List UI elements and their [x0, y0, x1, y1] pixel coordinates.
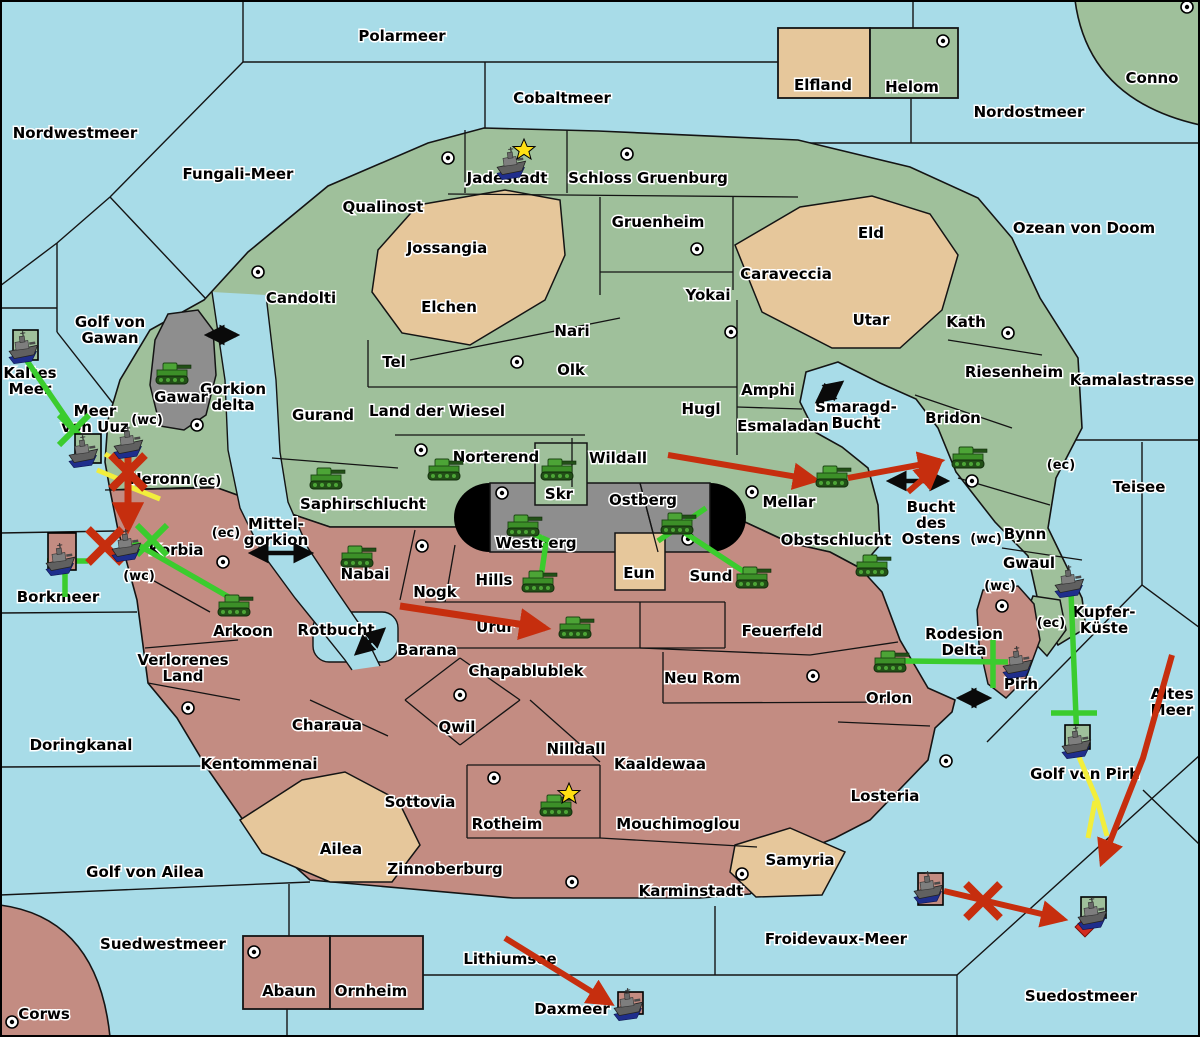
- territory-label-conno: Conno: [1126, 69, 1179, 87]
- territory-label-elchen: Elchen: [421, 298, 477, 316]
- sea-label-kamalastrasse: Kamalastrasse: [1070, 371, 1194, 389]
- sea-label-teisee: Teisee: [1113, 478, 1166, 496]
- territory-label-obstschlucht: Obstschlucht: [781, 531, 892, 549]
- territory-label-norterend: Norterend: [453, 448, 540, 466]
- territory-label-elfland: Elfland: [794, 76, 852, 94]
- territory-label-samyria: Samyria: [766, 851, 835, 869]
- sea-label-mittel-gorkion: Mittel-gorkion: [244, 515, 309, 549]
- territory-label-gwaul: Gwaul: [1003, 554, 1055, 572]
- city-marker: [621, 148, 633, 160]
- city-marker: [511, 356, 523, 368]
- territory-label-gawar: Gawar: [154, 388, 208, 406]
- territory-label-helom: Helom: [885, 78, 939, 96]
- territory-label-nabai: Nabai: [341, 565, 390, 583]
- territory-label-qwil: Qwil: [439, 718, 476, 736]
- territory-label-eld: Eld: [858, 224, 884, 242]
- sea-label-cobaltmeer: Cobaltmeer: [513, 89, 611, 107]
- sea-border-line: [0, 766, 205, 767]
- city-marker: [746, 486, 758, 498]
- ship-unit-borkmeer[interactable]: [43, 533, 77, 576]
- sea-label-nordostmeer: Nordostmeer: [974, 103, 1085, 121]
- territory-label-sund: Sund: [690, 567, 733, 585]
- sea-label-doringkanal: Doringkanal: [30, 736, 133, 754]
- territory-label-mouchimoglou: Mouchimoglou: [616, 815, 739, 833]
- city-marker: [416, 540, 428, 552]
- city-marker: [1181, 1, 1193, 13]
- coast-marker--wc-: (wc): [123, 569, 155, 584]
- city-marker: [807, 670, 819, 682]
- territory-label-rotheim: Rotheim: [472, 815, 543, 833]
- territory-label-utar: Utar: [853, 311, 890, 329]
- territory-label-ostberg: Ostberg: [609, 491, 677, 509]
- territory-label-schloss-gruenburg: Schloss Gruenburg: [568, 169, 728, 187]
- territory-label-candolti: Candolti: [266, 289, 336, 307]
- territory-label-bynn: Bynn: [1004, 525, 1047, 543]
- territory-label-neu-rom: Neu Rom: [664, 669, 740, 687]
- sea-label-froidevaux-meer: Froidevaux-Meer: [765, 930, 908, 948]
- city-marker: [566, 876, 578, 888]
- territory-label-kaaldewaa: Kaaldewaa: [614, 755, 706, 773]
- city-marker: [415, 444, 427, 456]
- territory-label-olk: Olk: [557, 361, 586, 379]
- map-root: PolarmeerCobaltmeerNordwestmeerNordostme…: [0, 0, 1200, 1037]
- territory-label-barana: Barana: [397, 641, 457, 659]
- territory-label-ornheim: Ornheim: [335, 982, 407, 1000]
- territory-label-yokai: Yokai: [684, 286, 730, 304]
- territory-label-jossangia: Jossangia: [406, 239, 488, 257]
- coast-marker--ec-: (ec): [1037, 616, 1065, 631]
- territory-label-nilldall: Nilldall: [546, 740, 605, 758]
- coast-marker--ec-: (ec): [1047, 458, 1075, 473]
- territory-label-ailea: Ailea: [320, 840, 362, 858]
- territory-label-sottovia: Sottovia: [385, 793, 456, 811]
- territory-label-land-der-wiesel: Land der Wiesel: [369, 402, 505, 420]
- coast-marker--wc-: (wc): [131, 413, 163, 428]
- territory-label-riesenheim: Riesenheim: [965, 363, 1063, 381]
- territory-label-arkoon: Arkoon: [213, 622, 273, 640]
- sea-label-ozean-von-doom: Ozean von Doom: [1013, 219, 1155, 237]
- territory-label-qualinost: Qualinost: [343, 198, 424, 216]
- territory-label-hugl: Hugl: [681, 400, 720, 418]
- territory-label-gurand: Gurand: [292, 406, 354, 424]
- city-marker: [940, 755, 952, 767]
- territory-label-caraveccia: Caraveccia: [740, 265, 832, 283]
- coast-marker--ec-: (ec): [212, 526, 240, 541]
- city-marker: [691, 243, 703, 255]
- sea-label-golf-von-gawan: Golf vonGawan: [75, 313, 145, 347]
- city-marker: [248, 946, 260, 958]
- city-marker: [966, 475, 978, 487]
- territory-label-amphi: Amphi: [741, 381, 795, 399]
- city-marker: [217, 556, 229, 568]
- territory-label-chapablublek: Chapablublek: [468, 662, 584, 680]
- territory-label-nogk: Nogk: [413, 583, 458, 601]
- city-marker: [182, 702, 194, 714]
- sea-label-suedostmeer: Suedostmeer: [1025, 987, 1138, 1005]
- territory-label-skr: Skr: [545, 485, 574, 503]
- territory-label-eun: Eun: [623, 564, 655, 582]
- territory-label-bridon: Bridon: [925, 409, 981, 427]
- city-marker: [937, 35, 949, 47]
- territory-label-feuerfeld: Feuerfeld: [742, 622, 823, 640]
- city-marker: [736, 868, 748, 880]
- territory-label-wildall: Wildall: [589, 449, 647, 467]
- territory-label-esmaladan: Esmaladan: [737, 417, 829, 435]
- territory-label-charaua: Charaua: [292, 716, 362, 734]
- territory-label-mellar: Mellar: [763, 493, 817, 511]
- territory-label-hills: Hills: [476, 571, 513, 589]
- sea-label-borkmeer: Borkmeer: [17, 588, 100, 606]
- territory-label-kupfer-küste: Kupfer-Küste: [1072, 603, 1135, 637]
- coast-marker--ec-: (ec): [193, 474, 221, 489]
- sea-border-line: [0, 612, 137, 613]
- territory-label-kentommenai: Kentommenai: [200, 755, 317, 773]
- city-marker: [454, 689, 466, 701]
- territory-label-gruenheim: Gruenheim: [612, 213, 705, 231]
- city-marker: [1002, 327, 1014, 339]
- territory-label-abaun: Abaun: [262, 982, 316, 1000]
- territory-label-kath: Kath: [946, 313, 986, 331]
- territory-label-nari: Nari: [554, 322, 589, 340]
- territory-label-orlon: Orlon: [866, 689, 912, 707]
- city-marker: [996, 600, 1008, 612]
- coast-marker--wc-: (wc): [984, 579, 1016, 594]
- sea-label-nordwestmeer: Nordwestmeer: [13, 124, 138, 142]
- territory-label-saphirschlucht: Saphirschlucht: [300, 495, 426, 513]
- territory-label-corws: Corws: [18, 1005, 70, 1023]
- sea-label-fungali-meer: Fungali-Meer: [183, 165, 294, 183]
- city-marker: [496, 487, 508, 499]
- city-marker: [6, 1016, 18, 1028]
- city-marker: [191, 419, 203, 431]
- territory-label-tel: Tel: [382, 353, 406, 371]
- city-marker: [442, 152, 454, 164]
- coast-marker--wc-: (wc): [970, 532, 1002, 547]
- sea-label-daxmeer: Daxmeer: [534, 1000, 610, 1018]
- sea-label-suedwestmeer: Suedwestmeer: [100, 935, 226, 953]
- territory-label-losteria: Losteria: [851, 787, 920, 805]
- sea-label-polarmeer: Polarmeer: [358, 27, 446, 45]
- sea-label-golf-von-ailea: Golf von Ailea: [86, 863, 204, 881]
- city-marker: [488, 772, 500, 784]
- territory-label-karminstadt: Karminstadt: [639, 882, 744, 900]
- city-marker: [725, 326, 737, 338]
- territory-label-zinnoberburg: Zinnoberburg: [387, 860, 503, 878]
- city-marker: [252, 266, 264, 278]
- sea-label-rotbucht: Rotbucht: [297, 621, 374, 639]
- war-game-map: PolarmeerCobaltmeerNordwestmeerNordostme…: [0, 0, 1200, 1037]
